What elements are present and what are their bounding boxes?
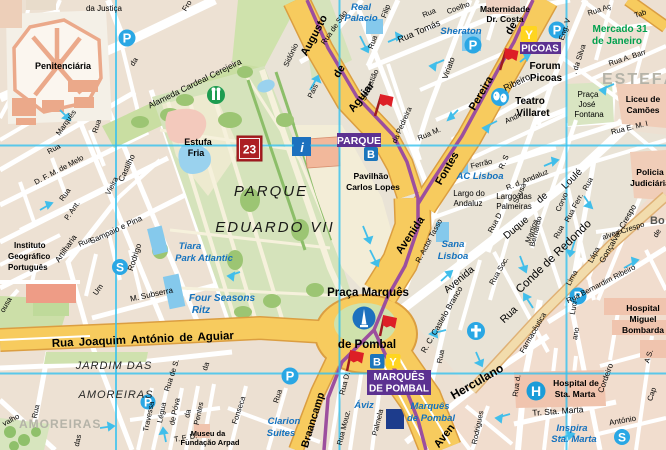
svg-text:Judiciária: Judiciária	[630, 178, 666, 188]
svg-text:PARQUE: PARQUE	[234, 183, 308, 200]
svg-text:Penitenciária: Penitenciária	[35, 61, 92, 71]
svg-text:AC Lisboa: AC Lisboa	[456, 171, 504, 182]
svg-text:B: B	[367, 149, 375, 161]
svg-text:PARQUE: PARQUE	[337, 135, 381, 147]
svg-text:ESTEFÂN: ESTEFÂN	[602, 69, 666, 88]
svg-text:Four Seasons: Four Seasons	[189, 293, 256, 304]
svg-text:Instituto: Instituto	[14, 241, 46, 250]
svg-text:Praça: Praça	[578, 90, 599, 99]
svg-text:de Pombal: de Pombal	[407, 413, 455, 424]
svg-text:de Pombal: de Pombal	[338, 339, 396, 351]
svg-text:Estufa: Estufa	[184, 137, 213, 147]
svg-text:Marquês: Marquês	[410, 401, 449, 412]
svg-text:Andaluz: Andaluz	[454, 199, 483, 208]
svg-text:P: P	[286, 369, 295, 384]
svg-text:Policia: Policia	[636, 167, 664, 177]
svg-text:AMOREIRAS: AMOREIRAS	[19, 417, 101, 431]
svg-text:Sana: Sana	[442, 239, 465, 250]
svg-text:Geográfico: Geográfico	[8, 252, 50, 261]
svg-text:Maternidade: Maternidade	[480, 4, 530, 14]
svg-text:Sta. Marta: Sta. Marta	[555, 389, 596, 399]
svg-text:i: i	[300, 140, 304, 155]
svg-text:23: 23	[243, 143, 257, 157]
svg-text:EDUARDO VII: EDUARDO VII	[215, 219, 335, 236]
svg-text:Dr. Costa: Dr. Costa	[486, 14, 524, 24]
svg-text:Teatro: Teatro	[515, 96, 545, 107]
svg-text:Real: Real	[351, 2, 371, 13]
svg-text:Clarion: Clarion	[268, 416, 301, 427]
svg-text:Mercado 31: Mercado 31	[592, 24, 647, 35]
svg-text:de Janeiro: de Janeiro	[592, 36, 642, 47]
svg-text:Palacio: Palacio	[344, 13, 377, 24]
svg-text:Y: Y	[525, 28, 533, 42]
svg-text:Português: Português	[8, 263, 48, 272]
svg-text:Suites: Suites	[267, 428, 296, 439]
svg-text:Praça Marquês: Praça Marquês	[327, 287, 409, 299]
svg-text:Lisboa: Lisboa	[438, 251, 469, 262]
svg-text:Palmeiras: Palmeiras	[496, 202, 532, 211]
svg-text:Áviz: Áviz	[353, 400, 374, 411]
svg-text:Fria: Fria	[188, 148, 206, 158]
svg-text:Villaret: Villaret	[516, 108, 550, 119]
svg-text:Hospital: Hospital	[626, 303, 660, 313]
svg-text:Tiara: Tiara	[179, 241, 202, 252]
svg-text:B: B	[373, 357, 381, 369]
svg-text:P: P	[469, 38, 478, 53]
svg-text:Sheraton: Sheraton	[440, 26, 481, 37]
svg-text:DE POMBAL: DE POMBAL	[369, 384, 429, 395]
svg-text:Picoas: Picoas	[530, 73, 563, 84]
svg-text:Bo: Bo	[650, 215, 665, 227]
svg-text:AMOREIRAS: AMOREIRAS	[77, 389, 153, 401]
svg-text:Largo do: Largo do	[453, 189, 485, 198]
svg-text:Y: Y	[389, 357, 397, 369]
svg-text:PICOAS: PICOAS	[521, 44, 559, 55]
svg-text:S: S	[116, 261, 124, 275]
svg-text:Liceu de: Liceu de	[626, 94, 661, 104]
svg-text:Fontana: Fontana	[574, 110, 604, 119]
svg-text:MARQUÊS: MARQUÊS	[373, 370, 424, 383]
svg-text:Forum: Forum	[529, 61, 560, 72]
svg-text:Ritz: Ritz	[192, 305, 210, 316]
svg-text:JARDIM DAS: JARDIM DAS	[75, 360, 153, 372]
svg-text:Sta. Marta: Sta. Marta	[551, 434, 596, 445]
svg-text:Carlos Lopes: Carlos Lopes	[346, 182, 400, 192]
svg-text:da Justiça: da Justiça	[86, 4, 123, 13]
svg-text:Camões: Camões	[626, 105, 659, 115]
svg-text:Pavilhão: Pavilhão	[354, 171, 389, 181]
svg-text:Park Atlantic: Park Atlantic	[175, 253, 233, 264]
svg-text:Miguel: Miguel	[630, 314, 657, 324]
svg-text:S: S	[618, 431, 626, 445]
svg-text:P: P	[123, 31, 132, 46]
svg-text:Inspira: Inspira	[556, 423, 587, 434]
svg-text:Largo das: Largo das	[496, 192, 532, 201]
svg-text:José: José	[579, 100, 596, 109]
svg-text:H: H	[531, 383, 541, 399]
svg-text:Hospital de: Hospital de	[553, 378, 599, 388]
svg-text:Bombarda: Bombarda	[622, 325, 664, 335]
